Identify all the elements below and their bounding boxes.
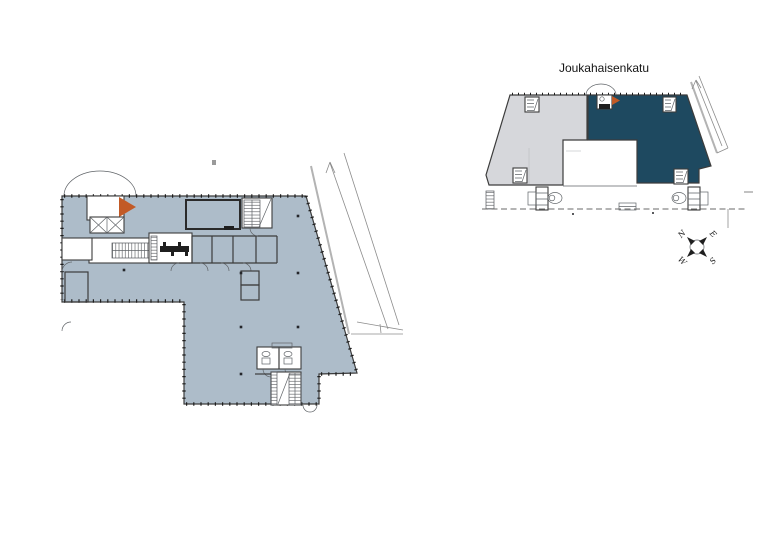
door-arc xyxy=(62,322,71,331)
overview-ground-features xyxy=(482,187,753,228)
overview-stair-core xyxy=(513,168,527,183)
north-arrow-icon: N E S W xyxy=(676,228,719,268)
west-annex-room xyxy=(62,238,92,260)
overview-stair-core xyxy=(525,97,539,112)
floor-plan-drawing: Joukahaisenkatu xyxy=(0,0,768,543)
compass-south-label: S xyxy=(708,256,719,267)
overview-stair-core xyxy=(674,169,688,184)
compass-east-label: E xyxy=(707,228,718,239)
street-end-band xyxy=(351,322,403,334)
main-floor-plan xyxy=(62,160,357,412)
vent-mark xyxy=(224,226,234,230)
stairwell-west xyxy=(89,238,158,263)
entrance-vestibule xyxy=(87,196,124,220)
double-door xyxy=(303,405,317,412)
overview-map: Joukahaisenkatu xyxy=(482,61,753,228)
street-label: Joukahaisenkatu xyxy=(559,61,649,75)
overview-stair-core xyxy=(663,97,676,112)
overview-elevator-mark xyxy=(599,104,610,109)
entrance-canopy-arc xyxy=(64,171,136,196)
stairwell-south xyxy=(271,372,301,405)
service-core xyxy=(149,233,192,263)
tiny-plan-mark xyxy=(212,160,216,165)
room-block-north xyxy=(186,200,240,229)
elevator-shafts-icon xyxy=(90,217,124,233)
compass-north-label: N xyxy=(676,228,689,241)
compass-west-label: W xyxy=(676,255,689,268)
